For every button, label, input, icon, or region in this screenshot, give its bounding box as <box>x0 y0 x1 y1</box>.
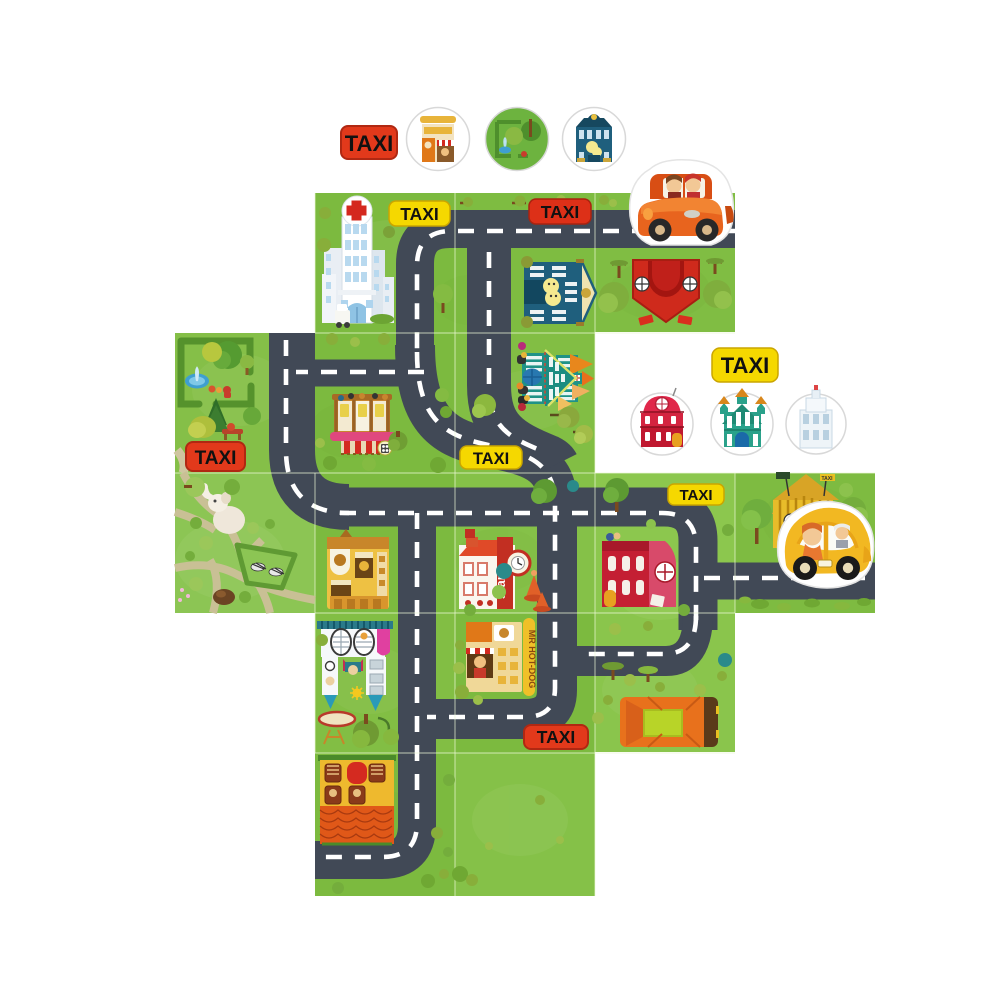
svg-text:TAXI: TAXI <box>345 131 393 156</box>
svg-text:MR HOT-DOG: MR HOT-DOG <box>527 630 537 689</box>
svg-text:TAXI: TAXI <box>400 204 439 224</box>
svg-text:TAXI: TAXI <box>821 476 833 482</box>
svg-text:TAXI: TAXI <box>473 450 509 468</box>
svg-text:TAXI: TAXI <box>541 202 580 222</box>
svg-text:TAXI: TAXI <box>679 487 712 504</box>
svg-text:TAXI: TAXI <box>721 353 769 378</box>
svg-text:TAXI: TAXI <box>195 448 237 469</box>
svg-text:TAXI: TAXI <box>537 727 576 747</box>
